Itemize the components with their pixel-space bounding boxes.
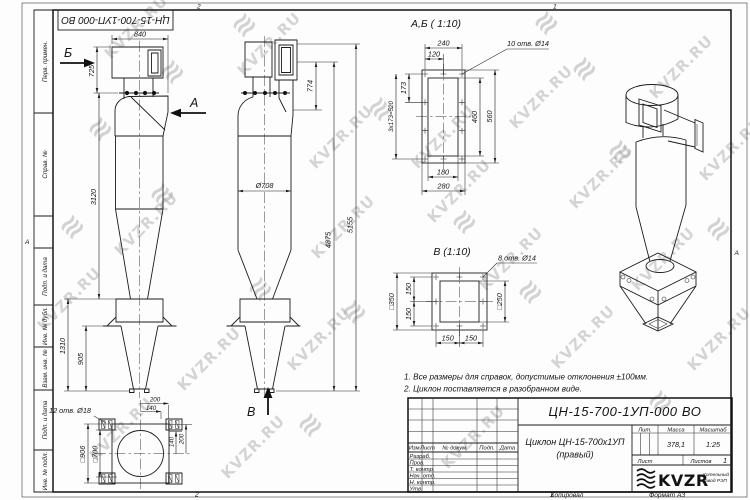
zone-number: 2 [194,491,199,498]
kvzr-logo-text: KVZR [658,471,709,490]
format-label: Формат А3 [649,492,685,499]
dim-3120: 3120 [89,189,98,205]
dim-725: 725 [87,64,96,77]
dim-4875: 4875 [324,231,333,248]
lit-label: Лит. [637,427,652,433]
bottom-view: 12 отв. Ø18 □906 □700 200 140 140 200 [49,397,192,491]
stamp-label: Инв. № подл. [42,452,49,490]
dim-350: □350 [387,293,396,310]
zone-number: 2 [196,4,201,11]
col-doc: № докум. [442,446,468,452]
holes-label-ab: 10 отв. Ø14 [507,39,549,48]
col-list: Лист [419,446,435,452]
dim-240: 240 [436,39,449,48]
scale-value: 1:25 [706,440,721,449]
dim-280: 280 [436,182,449,191]
side-view: Ø708 774 4875 5155 В [227,36,361,419]
zone-number: 1 [553,4,557,11]
dim-560: 560 [485,110,494,122]
corner-stamp: ЦН-15-700-1УП-000 ВО [58,10,173,30]
dim-150-4: 150 [465,334,477,343]
note-line-1: 1. Все размеры для справок, допустимые о… [404,373,648,382]
copied-label: Копировал [551,492,584,499]
stamp-label: Подп. и дата [42,400,49,439]
dim-1310: 1310 [58,338,67,354]
drawing-sheet: KVZR.RU KVZR.RU KVZR.RU KVZR.RU KVZR.RU … [0,0,750,500]
zone-letter: А [24,239,30,246]
dim-150-2: 150 [404,308,413,320]
org-name-line1: Котельный [703,471,729,478]
scale-label: Масштаб [699,427,727,433]
col-data: Дата [499,446,516,452]
row-prov: Пров. [410,460,425,466]
dim-774: 774 [306,80,315,92]
dim-520: 3х173=520 [388,101,395,132]
row-nkontr: Н. контр. [410,480,436,486]
dim-460: 460 [470,111,479,123]
dim-906: □906 [78,445,87,463]
section-v-view: В (1:10) □350 150 150 □250 150 150 8 отв… [387,246,537,347]
holes-label-bottom: 12 отв. Ø18 [49,406,92,415]
section-v-title: В (1:10) [433,246,470,258]
dim-200-right: 200 [179,433,186,445]
stamp-label: Инв. № дубл. [42,307,49,345]
row-tkontr: Т. контр. [410,467,435,473]
part-name-line1: Циклон ЦН-15-700х1УП [525,437,625,447]
sheet-label: Лист [637,459,653,465]
view-arrow-label-v: В [247,405,255,419]
notes: 1. Все размеры для справок, допустимые о… [403,373,648,394]
kvzr-logo-spring-icon [637,469,655,488]
dim-250: □250 [495,293,504,310]
section-ab-view: А,Б ( 1:10) 240 120 10 отв. Ø14 173 3х17… [388,18,549,195]
drawing-canvas: Перв. примен. Справ. № Подп. и дата Инв.… [0,0,750,500]
row-razrab: Разраб. [410,454,431,460]
dim-180: 180 [437,168,449,177]
stamp-label: Взам. инв. № [42,349,49,388]
holes-label-v: 8 отв. Ø14 [498,254,536,263]
designation: ЦН-15-700-1УП-000 ВО [548,404,701,419]
stamp-label: Перв. примен. [42,41,49,82]
sheets-label: Листов [689,459,711,465]
row-nachotd: Нач. отд. [410,473,436,479]
dim-200-top: 200 [149,397,161,404]
title-block: ЦН-15-700-1УП-000 ВО Циклон ЦН-15-700х1У… [408,398,732,499]
mass-value: 378,1 [667,440,685,449]
view-arrow-label-b: Б [64,46,72,60]
isometric-view [620,85,703,332]
dim-150-1: 150 [404,283,413,295]
dim-905: 905 [76,352,85,365]
section-ab-title: А,Б ( 1:10) [410,18,461,30]
org-name-line2: завод РЭП [702,478,727,484]
stamp-label: Справ. № [42,150,49,178]
dim-140-right: 140 [169,436,176,447]
mass-label: Масса [667,427,685,433]
zone-letter: А [734,250,740,257]
part-name-line2: (правый) [556,450,593,460]
front-view: 840 725 3120 1310 905 Б А [58,30,206,399]
dim-150-3: 150 [442,334,454,343]
dim-840: 840 [134,30,146,39]
corner-stamp-designation: ЦН-15-700-1УП-000 ВО [61,14,170,25]
dim-120: 120 [428,50,440,59]
col-podp: Подп. [479,446,494,452]
dim-5155: 5155 [346,216,355,233]
view-arrow-label-a: А [189,96,198,110]
note-line-2: 2. Циклон поставляется в разобранном вид… [403,385,582,394]
stamp-label: Подп. и дата [42,257,49,296]
dim-700: □700 [91,446,100,463]
dim-140-top: 140 [146,405,157,412]
dim-173: 173 [399,82,408,94]
dim-708: Ø708 [255,181,275,190]
row-utv: Утв. [409,486,423,492]
sheets-value: 1 [723,456,727,465]
view-arrow-a [170,109,181,118]
